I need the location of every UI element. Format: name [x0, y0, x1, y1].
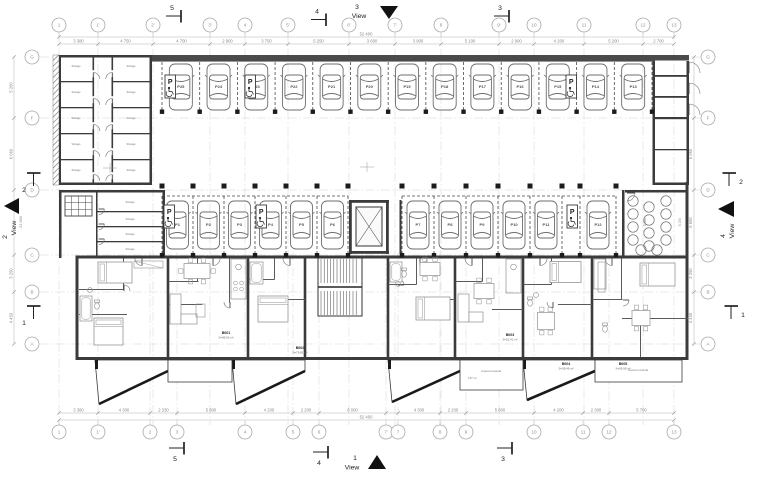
- sign-letter: P: [570, 209, 575, 216]
- dim-label: 5 200: [608, 38, 619, 43]
- terrace-circle: [661, 235, 671, 245]
- dim-label: 3 250: [688, 268, 693, 279]
- terrace-circle: [652, 245, 662, 255]
- parking-space-label: P12: [594, 222, 602, 227]
- dim-label: 2 200: [448, 407, 459, 412]
- grid-bubble-label: 1': [96, 23, 100, 28]
- parking-space-label: P13: [630, 84, 638, 89]
- apartment-id: B004: [562, 362, 571, 366]
- grid-bubble-label: B: [706, 290, 709, 295]
- door-swing-icon: [213, 259, 220, 266]
- apartment-area: S=85.60 m²: [218, 335, 233, 339]
- storage-room-label: Storage: [125, 200, 135, 204]
- apartment-area: S=58.46 m²: [558, 366, 573, 370]
- door-swing-icon: [224, 302, 230, 308]
- accessible-parking-sign: P: [256, 205, 267, 228]
- apartment-area: S=52.41 m²: [502, 337, 517, 341]
- terrace-circle: [644, 202, 654, 212]
- floor-plan-svg: 3 3804 7504 7002 9003 7505 2503 6003 900…: [0, 0, 757, 477]
- grid-bubble-label: 13: [671, 430, 677, 435]
- terrace-circle: [628, 235, 638, 245]
- parking-space-label: P19: [403, 84, 411, 89]
- view-label: View: [729, 224, 736, 239]
- section-marker-label: 5: [170, 5, 174, 12]
- dim-label: 3 380: [73, 38, 84, 43]
- balcony-outline: [388, 360, 460, 402]
- parking-space-label: P22: [290, 84, 298, 89]
- parking-space-label: P3: [237, 222, 243, 227]
- parking-space-label: P5: [299, 222, 305, 227]
- terrace-circle: [644, 241, 654, 251]
- dim-label: 5 800: [495, 407, 506, 412]
- storage-room-label: Storage: [126, 142, 136, 146]
- parking-space-label: P16: [517, 84, 525, 89]
- terrace-circles: [628, 196, 671, 255]
- apartment-id: B001: [222, 331, 231, 335]
- door-swing-icon: [124, 285, 130, 291]
- terrace-circle: [636, 245, 646, 255]
- dim-label: 5 260: [9, 82, 14, 93]
- apartment-id: B005: [619, 362, 628, 366]
- grid-bubble-label: 1: [58, 23, 61, 28]
- grid-bubble-label: 8: [440, 23, 443, 28]
- storage-room-label: Storage: [71, 90, 81, 94]
- dim-total-label: 52 400: [360, 414, 373, 419]
- sign-letter: P: [167, 209, 172, 216]
- veranda-label: covered veranda: [481, 369, 502, 373]
- parking: P25P24P23P22P21P20P19P18P17P16P15P14P13P…: [160, 62, 655, 257]
- storage-room-label: Storage: [71, 142, 81, 146]
- view-triangle-icon: [718, 201, 734, 217]
- storage-room-label: Storage: [126, 116, 136, 120]
- view-label: View: [345, 465, 360, 472]
- dim-label: 5 250: [313, 38, 324, 43]
- sign-letter: P: [569, 79, 574, 86]
- accessible-parking-sign: P: [165, 75, 176, 98]
- dim-label: 3 250: [9, 268, 14, 279]
- accessible-parking-sign: P: [245, 75, 256, 98]
- grid-bubble-label: F: [707, 116, 710, 121]
- grid-bubble-label: F: [31, 116, 34, 121]
- balconies: [95, 360, 682, 404]
- veranda-label: covered veranda: [628, 368, 649, 372]
- dim-label: 5 700: [636, 407, 647, 412]
- parking-space-label: P15: [554, 84, 562, 89]
- misc-markers: [103, 162, 374, 173]
- balcony-outline: [95, 360, 168, 404]
- terrace-circle: [628, 209, 638, 219]
- grid-bubble-label: 13: [671, 23, 677, 28]
- terrace-circle: [661, 209, 671, 219]
- terrace-circle: [661, 196, 671, 206]
- terrace-circle: [628, 196, 638, 206]
- dim-label: 2 700: [653, 38, 664, 43]
- dim-label: 4 300: [119, 407, 130, 412]
- grid-bubble-label: 8: [439, 430, 442, 435]
- dim-label: 4 700: [176, 38, 187, 43]
- terrace-circle: [644, 228, 654, 238]
- apartment-area: S=79.81 m²: [292, 350, 307, 354]
- view-number: 2: [2, 235, 9, 239]
- door-swing-icon: [540, 259, 547, 266]
- accessible-parking-sign: P: [164, 205, 175, 228]
- grid-bubble-label: 5: [292, 430, 295, 435]
- grid-bubble-label: 6': [347, 23, 351, 28]
- dim-label: 2 330: [158, 407, 169, 412]
- storage-room-label: Storage: [125, 247, 135, 251]
- dim-label: 5 100: [465, 38, 476, 43]
- sign-letter: P: [248, 79, 253, 86]
- dim-label: 2 300: [591, 407, 602, 412]
- sign-letter: P: [168, 79, 173, 86]
- sign-letter: P: [259, 209, 264, 216]
- parking-space-label: P1: [175, 222, 181, 227]
- dim-label: 6 060: [9, 148, 14, 159]
- parking-space-label: P24: [215, 84, 223, 89]
- dim-label: 2 200: [301, 407, 312, 412]
- apartment-id: B002: [296, 346, 305, 350]
- balcony-outline: [232, 360, 305, 404]
- dim-total-label: 24 660: [19, 216, 23, 228]
- dim-label: 3 750: [261, 38, 272, 43]
- grid-bubble-label: 12: [640, 23, 646, 28]
- grid-bubble-label: 2': [151, 23, 155, 28]
- grid-bubble-label: 1': [96, 430, 100, 435]
- section-marker-label: 2: [739, 179, 743, 186]
- door-swing-icon: [689, 62, 700, 73]
- section-marker-label: 1: [22, 320, 26, 327]
- dim-label: 5 650: [688, 217, 693, 228]
- view-triangle-icon: [4, 198, 19, 214]
- dim-label: 4 200: [264, 407, 275, 412]
- dim-label: 4 200: [553, 407, 564, 412]
- door-swing-icon: [689, 83, 700, 94]
- grid-bubble-label: 4: [244, 430, 247, 435]
- dim-label: 4 750: [120, 38, 131, 43]
- dim-label: 6 000: [347, 407, 358, 412]
- view-label: View: [11, 221, 18, 236]
- grid-bubble-label: 7': [393, 23, 397, 28]
- grid-bubble-label: 4: [244, 23, 247, 28]
- grid-bubble-label: 10: [531, 23, 537, 28]
- dim-label: 3 380: [73, 407, 84, 412]
- parking-space-label: P8: [448, 222, 454, 227]
- parking-space-label: P10: [510, 222, 518, 227]
- dim-label: 2 900: [511, 38, 522, 43]
- section-marker-label: 1: [741, 312, 745, 319]
- section-marker-label: 3: [501, 456, 505, 463]
- storage-room-label: Storage: [71, 168, 81, 172]
- section-marker-label: 4: [315, 9, 319, 16]
- storage-room-label: Storage: [125, 217, 135, 221]
- grid-bubble-label: 6: [318, 430, 321, 435]
- dim-label: 4 450: [9, 312, 14, 323]
- grid-bubble-label: 5': [286, 23, 290, 28]
- floor-plan-sheet: 3 3804 7504 7002 9003 7505 2503 6003 900…: [0, 0, 757, 477]
- parking-space-label: P20: [366, 84, 374, 89]
- apartment-id: B003: [506, 333, 515, 337]
- parking-space-label: P25: [177, 84, 185, 89]
- view-label: View: [352, 13, 367, 20]
- accessible-parking-sign: P: [566, 75, 577, 98]
- grid-bubble-label: G: [30, 55, 34, 60]
- dim-label: 3 600: [367, 38, 378, 43]
- accessible-parking-sign: P: [567, 205, 578, 228]
- grid-bubble-label: G: [706, 55, 710, 60]
- dim-label: 5 190: [678, 218, 682, 227]
- door-swing-icon: [623, 300, 629, 306]
- door-swing-icon: [283, 259, 290, 266]
- parking-space-label: P9: [480, 222, 486, 227]
- storage-room-label: Storage: [71, 64, 81, 68]
- grid-bubble-label: 2: [149, 430, 152, 435]
- view-number: 3: [355, 4, 359, 11]
- grid-bubble-label: 3': [208, 23, 212, 28]
- section-marker-label: 5: [173, 456, 177, 463]
- parking-space-label: P7: [416, 222, 422, 227]
- grid-bubble-label: B: [30, 290, 33, 295]
- storage-room-label: Storage: [71, 116, 81, 120]
- storage-room-label: Storage: [126, 168, 136, 172]
- parking-space-label: P6: [330, 222, 336, 227]
- grid-bubble-label: 12: [606, 430, 612, 435]
- dim-total-label: 52 400: [360, 32, 373, 37]
- section-marker-label: 3: [498, 5, 502, 12]
- grid-bubble-label: 7': [384, 430, 388, 435]
- veranda-area: 7.67 m²: [467, 376, 476, 380]
- parking-space-label: P2: [206, 222, 212, 227]
- terrace-circle: [628, 222, 638, 232]
- grid-bubble-label: 9: [465, 430, 468, 435]
- dim-label: 5 800: [206, 407, 217, 412]
- grid-bubble-label: 11: [581, 430, 586, 435]
- dim-label: 4 300: [414, 407, 425, 412]
- dim-label: 2 900: [222, 38, 233, 43]
- parking-space-label: P4: [268, 222, 274, 227]
- section-marker-label: 2: [22, 187, 26, 194]
- parking-space-label: P17: [479, 84, 487, 89]
- view-triangle-icon: [380, 6, 398, 19]
- storage-room-label: Storage: [126, 64, 136, 68]
- dim-label: 3 900: [413, 38, 424, 43]
- section-marker-label: 4: [317, 460, 321, 467]
- door-swing-icon: [689, 104, 700, 115]
- terrace-circle: [661, 222, 671, 232]
- parking-space-label: P18: [441, 84, 449, 89]
- storage-room-label: Storage: [126, 90, 136, 94]
- parking-space-label: P21: [328, 84, 336, 89]
- dim-label: 4 200: [554, 38, 565, 43]
- grid-bubble-label: 1: [58, 430, 61, 435]
- parking-space-label: P11: [543, 222, 551, 227]
- grid-bubble-label: 10: [531, 430, 537, 435]
- storage-room-label: Storage: [125, 232, 135, 236]
- grid-bubble-label: 11: [582, 23, 587, 28]
- view-triangle-icon: [368, 455, 386, 469]
- view-number: 4: [720, 234, 727, 238]
- grid-bubble-label: 9': [497, 23, 501, 28]
- parking-space-label: P14: [592, 84, 600, 89]
- view-number: 1: [353, 455, 357, 462]
- dim-label: 4 450: [688, 312, 693, 323]
- grid-bubble-label: 7: [397, 430, 400, 435]
- grid-bubble-label: 3: [176, 430, 179, 435]
